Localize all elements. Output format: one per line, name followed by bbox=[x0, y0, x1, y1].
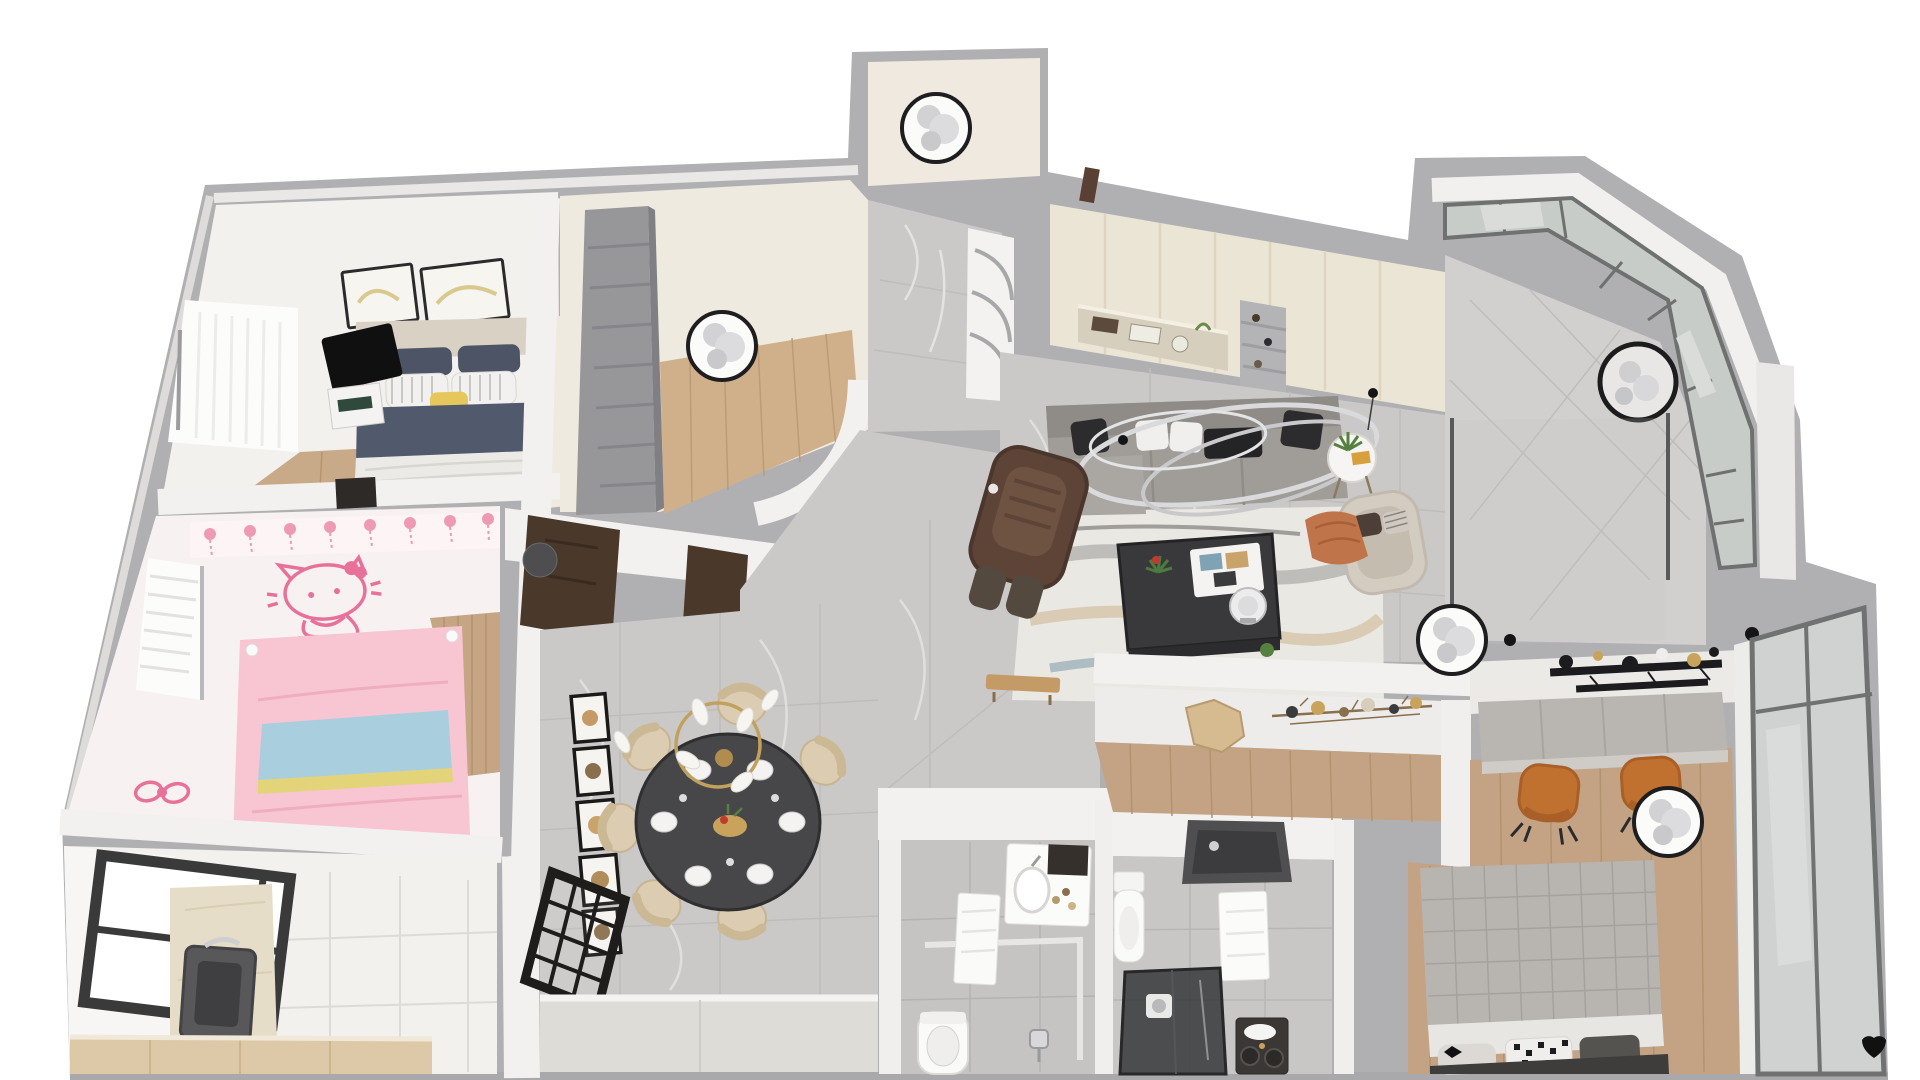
bedroom-ceiling-fan-icon bbox=[1634, 788, 1702, 856]
room-walk-in-closet bbox=[560, 180, 868, 515]
toilet-b bbox=[1114, 872, 1144, 962]
dark-dresser bbox=[335, 477, 377, 509]
round-basin bbox=[1241, 1047, 1259, 1065]
book bbox=[1225, 551, 1249, 569]
gold-box bbox=[1351, 451, 1370, 465]
window-frame-line bbox=[178, 330, 180, 430]
gold-fitting bbox=[1259, 1043, 1265, 1049]
gold-centerpiece bbox=[713, 815, 747, 837]
shelf-column bbox=[1240, 300, 1286, 396]
shower-head bbox=[1209, 841, 1219, 851]
bath-a-north-wall bbox=[878, 788, 1110, 840]
curtain-band bbox=[1756, 362, 1796, 580]
slider-glass bbox=[1455, 418, 1665, 645]
master-wall-art bbox=[342, 259, 509, 328]
books bbox=[1129, 324, 1161, 344]
room-bathroom-a bbox=[878, 788, 1110, 1074]
counter-edge bbox=[70, 1037, 432, 1039]
entry-ceiling-fan-icon bbox=[902, 94, 970, 162]
flower bbox=[720, 816, 728, 824]
round-basin bbox=[1265, 1049, 1283, 1067]
floorplan-render bbox=[0, 0, 1920, 1080]
bed-post bbox=[446, 630, 458, 642]
living-ceiling-fan-icon bbox=[1418, 606, 1486, 674]
shower-ceiling-panel bbox=[1182, 820, 1292, 884]
round-stool bbox=[523, 543, 557, 577]
vanity bbox=[1005, 844, 1092, 927]
bedroom-floor-window bbox=[1734, 608, 1886, 1074]
bed-post bbox=[246, 644, 258, 656]
towel-panel bbox=[1218, 891, 1269, 981]
vanity-b bbox=[1236, 1018, 1288, 1074]
book bbox=[1213, 571, 1236, 587]
room-dining bbox=[525, 598, 878, 1072]
toilet bbox=[918, 1012, 968, 1074]
sideboard bbox=[540, 998, 878, 1072]
wood-cabinet-run bbox=[70, 1038, 432, 1074]
wall-towel bbox=[954, 893, 1001, 985]
glass-reflection bbox=[1480, 202, 1544, 231]
room-master-bedroom bbox=[162, 192, 576, 508]
coffee-table bbox=[1118, 534, 1280, 661]
closet-shelving bbox=[576, 206, 664, 515]
corridor-wood-floor bbox=[1095, 742, 1465, 822]
closet-ceiling-lamp-icon bbox=[688, 312, 756, 380]
rolled-towels bbox=[1244, 1024, 1276, 1040]
vase bbox=[1172, 336, 1188, 352]
mirror-cabinet bbox=[1047, 844, 1088, 875]
robot-vacuum bbox=[1230, 588, 1266, 624]
room-bathroom-b bbox=[1112, 808, 1344, 1074]
shower-enclosure bbox=[1120, 968, 1226, 1074]
floor-plant bbox=[1260, 643, 1274, 657]
room-kitchen bbox=[64, 846, 497, 1074]
navy-pillow bbox=[458, 344, 521, 374]
sink-basin bbox=[194, 961, 242, 1028]
balcony-ceiling-fan-icon bbox=[1600, 344, 1676, 420]
book bbox=[1199, 553, 1223, 571]
desk bbox=[1478, 692, 1728, 774]
black-pillow bbox=[1280, 409, 1325, 450]
basin bbox=[1015, 868, 1049, 912]
kids-bed bbox=[233, 626, 470, 840]
apartment-svg bbox=[0, 0, 1920, 1080]
bedroom-bed bbox=[1420, 860, 1669, 1075]
